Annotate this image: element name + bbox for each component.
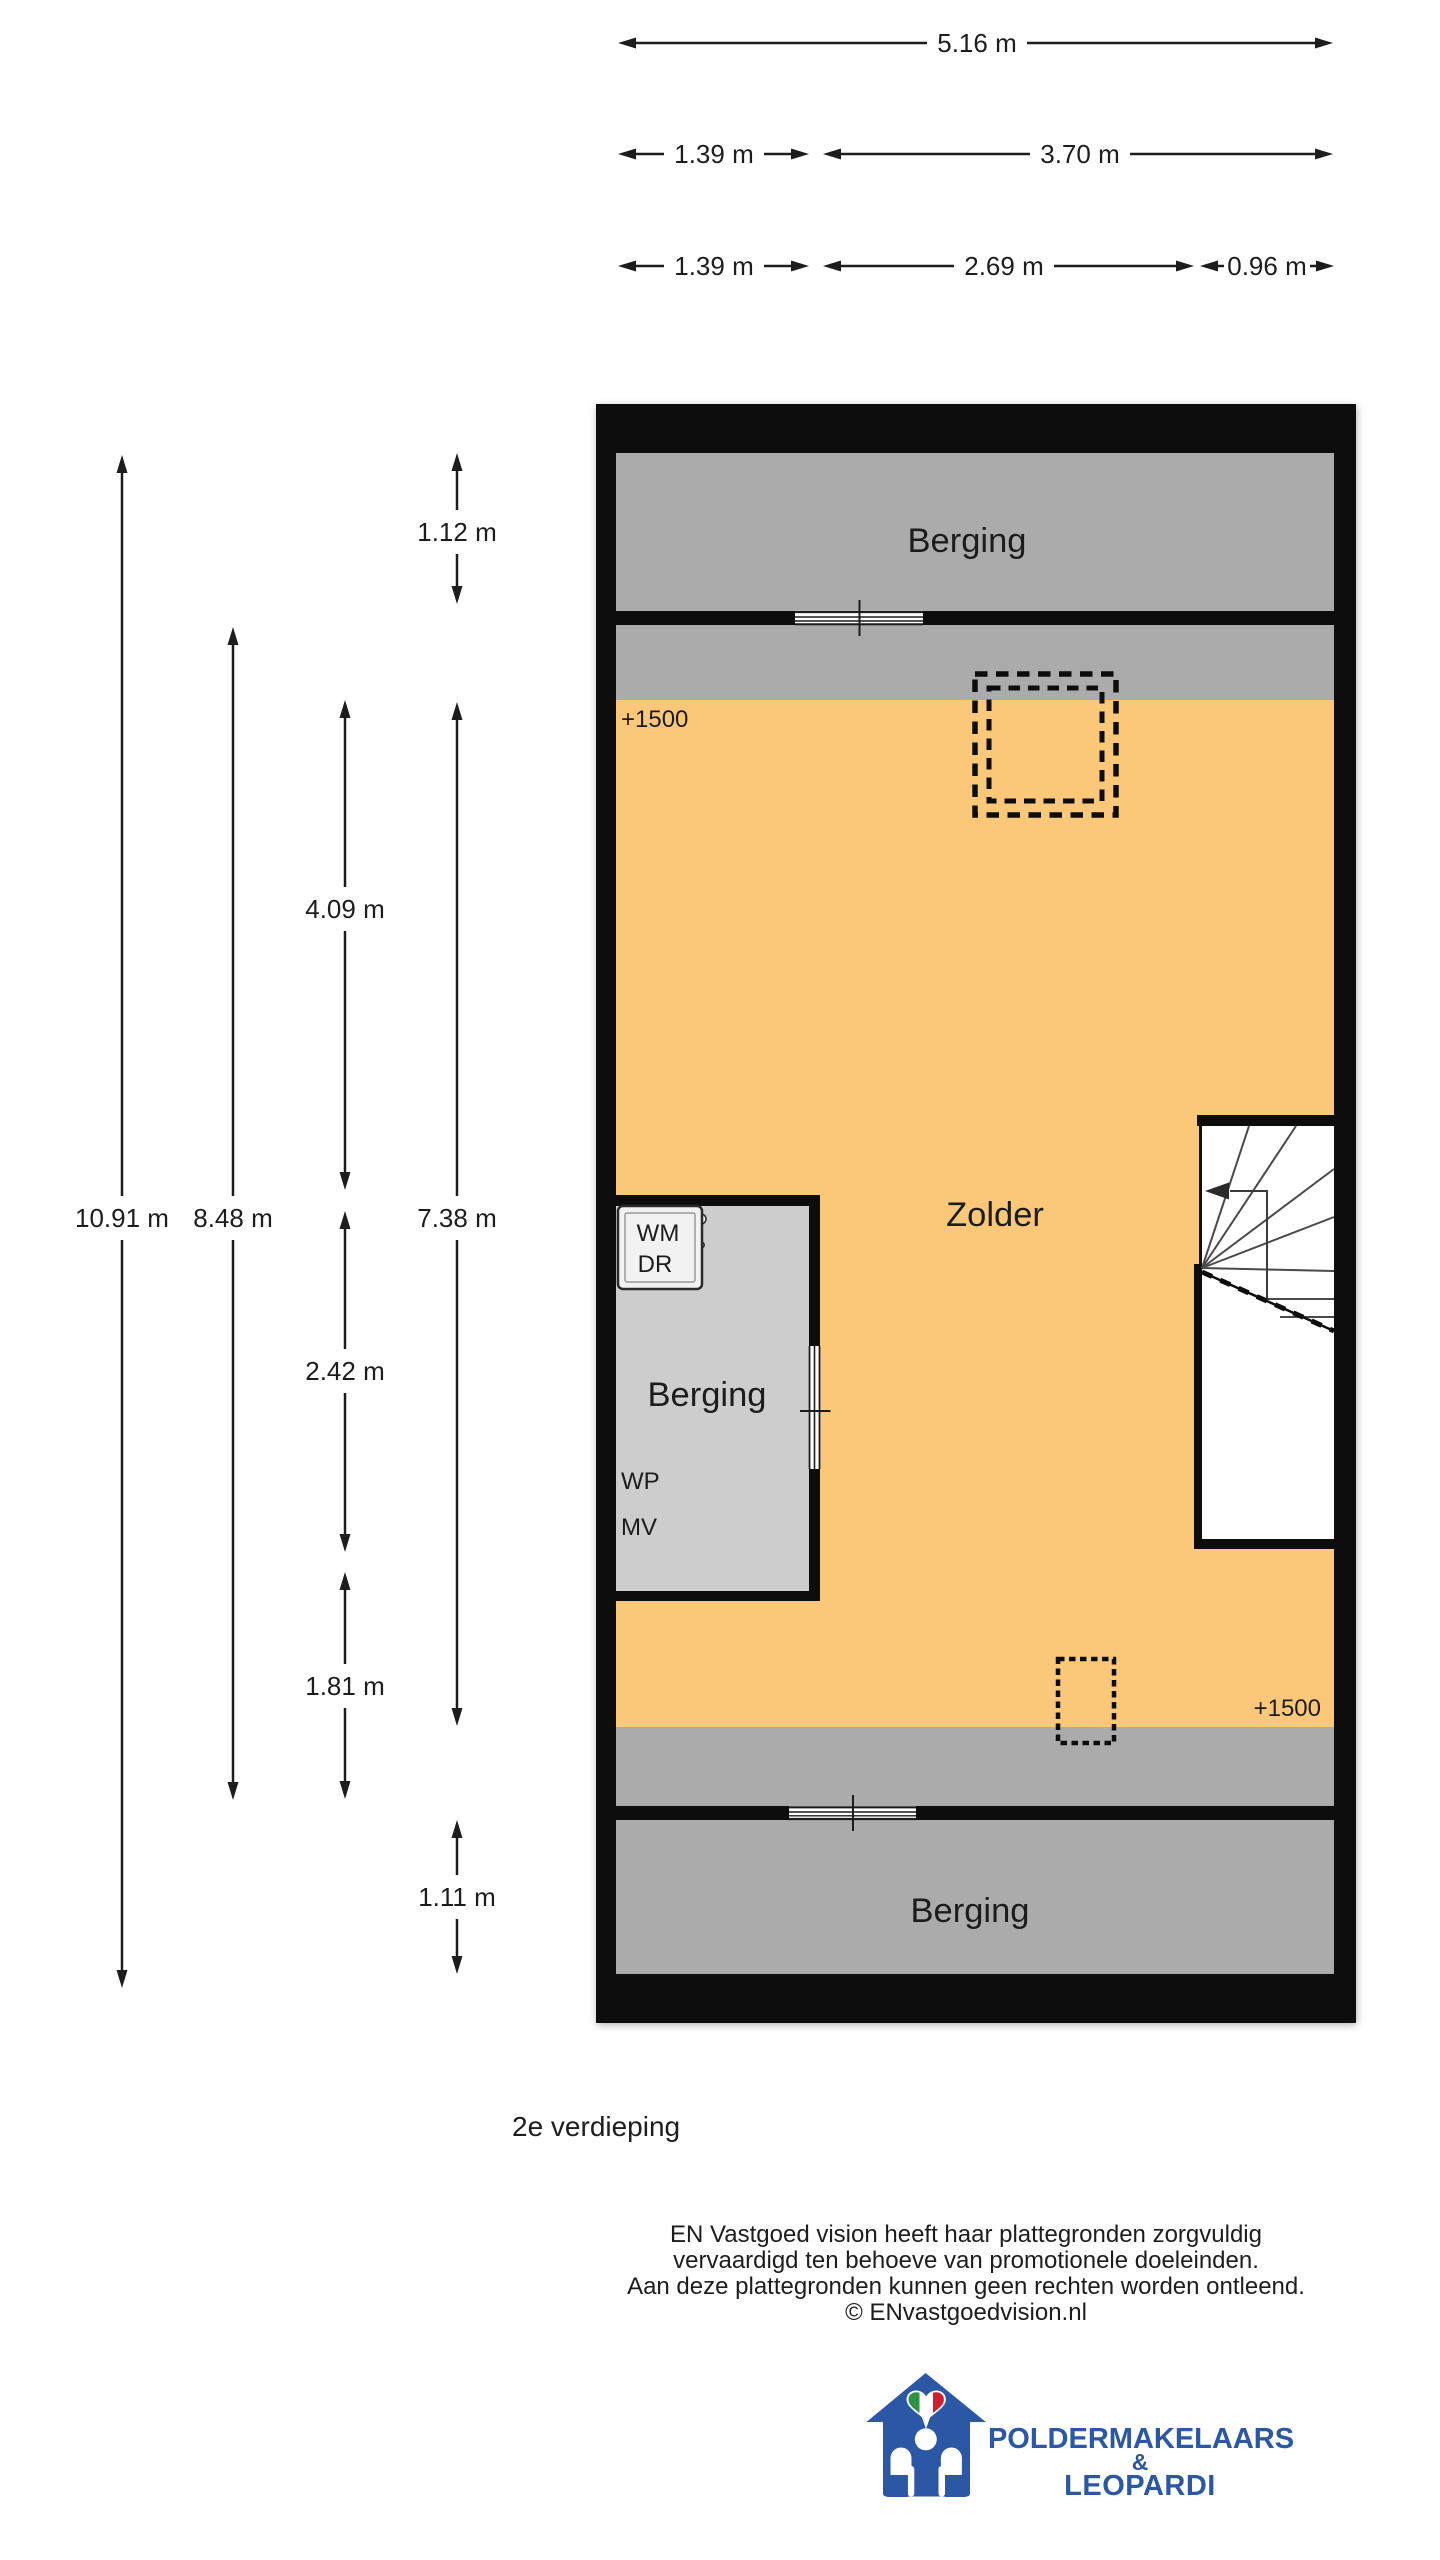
svg-text:10.91 m: 10.91 m (75, 1203, 169, 1233)
svg-text:WP: WP (621, 1468, 660, 1495)
svg-text:4.09 m: 4.09 m (305, 894, 385, 924)
svg-text:Berging: Berging (648, 1376, 767, 1414)
svg-text:vervaardigd ten behoeve van pr: vervaardigd ten behoeve van promotionele… (673, 2247, 1259, 2274)
svg-text:5.16 m: 5.16 m (937, 28, 1017, 58)
svg-text:MV: MV (621, 1514, 657, 1541)
svg-text:Aan deze plattegronden kunnen: Aan deze plattegronden kunnen geen recht… (627, 2273, 1305, 2300)
svg-text:WM: WM (637, 1220, 680, 1247)
svg-text:Berging: Berging (908, 522, 1027, 560)
svg-text:1.81 m: 1.81 m (305, 1671, 385, 1701)
svg-text:© ENvastgoedvision.nl: © ENvastgoedvision.nl (845, 2299, 1087, 2326)
svg-text:2e verdieping: 2e verdieping (512, 2111, 680, 2142)
svg-text:DR: DR (638, 1251, 673, 1278)
svg-text:2.42 m: 2.42 m (305, 1356, 385, 1386)
svg-text:1.39 m: 1.39 m (674, 251, 754, 281)
svg-text:7.38 m: 7.38 m (417, 1203, 497, 1233)
svg-text:LEOPARDI: LEOPARDI (1064, 2470, 1216, 2502)
svg-text:Zolder: Zolder (946, 1196, 1044, 1234)
svg-text:+1500: +1500 (621, 706, 688, 733)
svg-text:2.69 m: 2.69 m (964, 251, 1044, 281)
svg-text:EN Vastgoed vision heeft haar: EN Vastgoed vision heeft haar plattegron… (670, 2221, 1262, 2248)
svg-text:+1500: +1500 (1254, 1695, 1321, 1722)
svg-text:Berging: Berging (911, 1892, 1030, 1930)
svg-text:8.48 m: 8.48 m (193, 1203, 273, 1233)
svg-text:1.39 m: 1.39 m (674, 139, 754, 169)
svg-text:1.12 m: 1.12 m (417, 517, 497, 547)
svg-text:1.11 m: 1.11 m (418, 1882, 496, 1912)
svg-text:3.70 m: 3.70 m (1040, 139, 1120, 169)
svg-text:0.96 m: 0.96 m (1227, 251, 1307, 281)
